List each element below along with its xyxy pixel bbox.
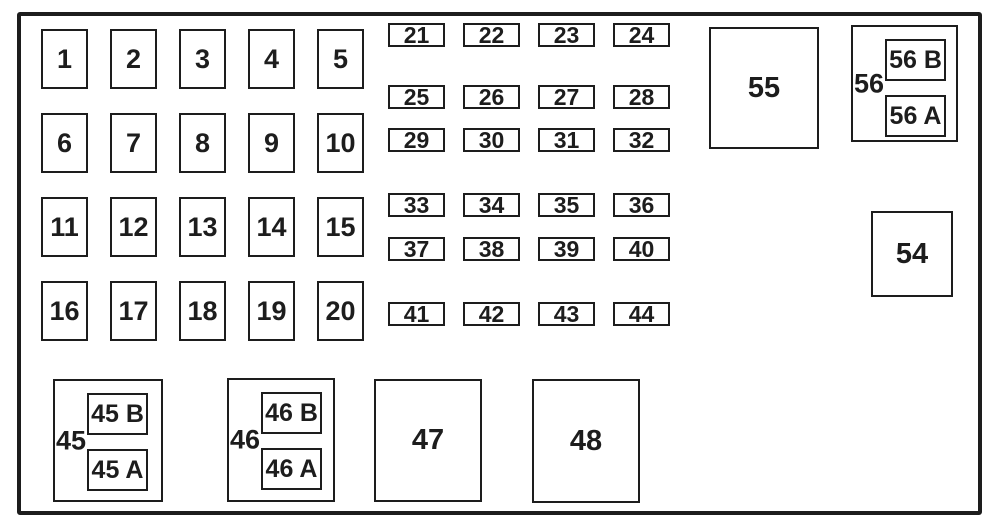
mini-fuse: 26 <box>463 85 520 109</box>
fuse-panel-outline: 1234567891011121314151617181920 21222324… <box>17 12 982 515</box>
relay-box-46a: 46 A <box>261 448 322 490</box>
mini-fuse: 30 <box>463 128 520 152</box>
mini-fuse: 22 <box>463 23 520 47</box>
mini-fuse-row-21-24: 21222324 <box>388 23 670 47</box>
square-fuse: 10 <box>317 113 364 173</box>
mini-fuse-row-25-28: 25262728 <box>388 85 670 109</box>
relay-box-45b-label: 45 B <box>91 400 144 429</box>
relay-box-54: 54 <box>871 211 953 297</box>
square-fuse: 6 <box>41 113 88 173</box>
mini-fuse: 34 <box>463 193 520 217</box>
relay-box-45a-label: 45 A <box>92 456 144 485</box>
mini-fuse-row-33-36: 33343536 <box>388 193 670 217</box>
square-fuse: 20 <box>317 281 364 341</box>
relay-group-45-label: 45 <box>56 427 86 454</box>
square-fuse: 11 <box>41 197 88 257</box>
square-fuse: 7 <box>110 113 157 173</box>
mini-fuse: 23 <box>538 23 595 47</box>
square-fuse: 17 <box>110 281 157 341</box>
relay-group-56: 56 56 B 56 A <box>851 25 958 142</box>
mini-fuse: 44 <box>613 302 670 326</box>
square-fuse: 16 <box>41 281 88 341</box>
mini-fuse: 31 <box>538 128 595 152</box>
mini-fuse: 39 <box>538 237 595 261</box>
mini-fuse: 42 <box>463 302 520 326</box>
square-fuse-grid-1-20: 1234567891011121314151617181920 <box>41 29 364 341</box>
mini-fuse-block-21-44: 21222324 25262728 29303132 33343536 3738… <box>388 23 670 326</box>
square-fuse: 13 <box>179 197 226 257</box>
relay-group-46-label: 46 <box>230 427 260 454</box>
relay-box-56b: 56 B <box>885 39 946 81</box>
fuse-box-diagram: 1234567891011121314151617181920 21222324… <box>0 0 1000 530</box>
square-fuse: 12 <box>110 197 157 257</box>
relay-group-45: 45 45 B 45 A <box>53 379 163 502</box>
square-fuse: 4 <box>248 29 295 89</box>
mini-fuse: 28 <box>613 85 670 109</box>
mini-fuse: 37 <box>388 237 445 261</box>
relay-box-48-label: 48 <box>570 425 602 458</box>
mini-fuse: 40 <box>613 237 670 261</box>
relay-box-46b: 46 B <box>261 392 322 434</box>
relay-box-56b-label: 56 B <box>889 46 942 75</box>
mini-fuse: 36 <box>613 193 670 217</box>
mini-fuse: 38 <box>463 237 520 261</box>
square-fuse: 3 <box>179 29 226 89</box>
mini-fuse: 41 <box>388 302 445 326</box>
relay-box-48: 48 <box>532 379 640 503</box>
relay-box-56a: 56 A <box>885 95 946 137</box>
square-fuse: 8 <box>179 113 226 173</box>
square-fuse: 15 <box>317 197 364 257</box>
relay-box-55: 55 <box>709 27 819 149</box>
mini-fuse: 32 <box>613 128 670 152</box>
relay-box-56a-label: 56 A <box>890 102 942 131</box>
relay-box-46a-label: 46 A <box>266 455 318 484</box>
relay-box-55-label: 55 <box>748 72 780 105</box>
mini-fuse: 24 <box>613 23 670 47</box>
relay-box-47-label: 47 <box>412 424 444 457</box>
mini-fuse: 27 <box>538 85 595 109</box>
mini-fuse: 33 <box>388 193 445 217</box>
relay-group-56-label: 56 <box>854 70 884 97</box>
mini-fuse-row-37-40: 37383940 <box>388 237 670 261</box>
relay-box-46b-label: 46 B <box>265 399 318 428</box>
square-fuse: 5 <box>317 29 364 89</box>
relay-group-46: 46 46 B 46 A <box>227 378 335 502</box>
square-fuse: 2 <box>110 29 157 89</box>
relay-box-45b: 45 B <box>87 393 148 435</box>
mini-fuse-row-41-44: 41424344 <box>388 302 670 326</box>
mini-fuse-row-29-32: 29303132 <box>388 128 670 152</box>
square-fuse: 18 <box>179 281 226 341</box>
square-fuse: 1 <box>41 29 88 89</box>
mini-fuse: 35 <box>538 193 595 217</box>
square-fuse: 14 <box>248 197 295 257</box>
square-fuse: 9 <box>248 113 295 173</box>
mini-fuse: 29 <box>388 128 445 152</box>
square-fuse: 19 <box>248 281 295 341</box>
mini-fuse: 43 <box>538 302 595 326</box>
mini-fuse: 25 <box>388 85 445 109</box>
relay-box-47: 47 <box>374 379 482 502</box>
relay-box-45a: 45 A <box>87 449 148 491</box>
relay-box-54-label: 54 <box>896 238 928 271</box>
mini-fuse: 21 <box>388 23 445 47</box>
